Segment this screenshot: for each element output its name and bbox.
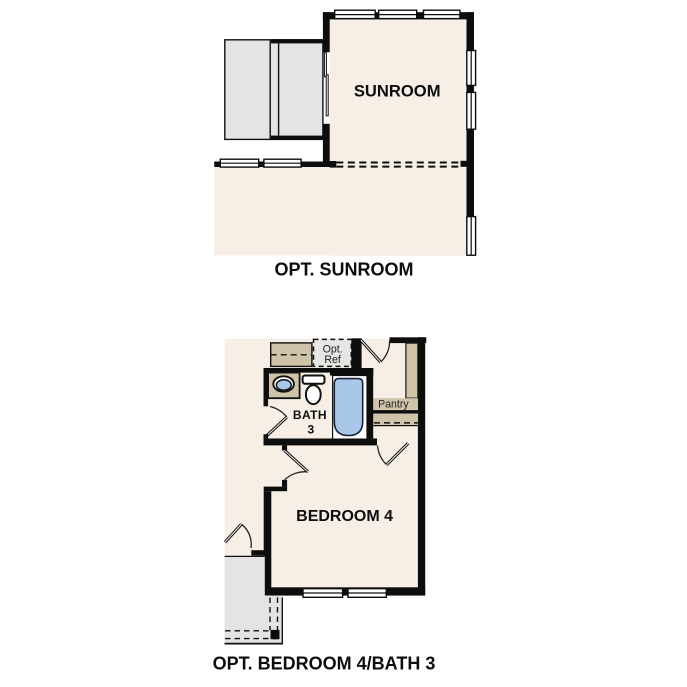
svg-text:Pantry: Pantry [378,399,409,411]
svg-text:OPT. BEDROOM 4/BATH 3: OPT. BEDROOM 4/BATH 3 [213,653,436,673]
svg-text:3: 3 [308,423,315,437]
svg-text:BEDROOM 4: BEDROOM 4 [296,508,393,525]
svg-text:OPT. SUNROOM: OPT. SUNROOM [274,260,413,280]
svg-text:BATH: BATH [293,408,327,422]
svg-text:SUNROOM: SUNROOM [354,82,441,101]
svg-text:Ref: Ref [324,354,341,366]
